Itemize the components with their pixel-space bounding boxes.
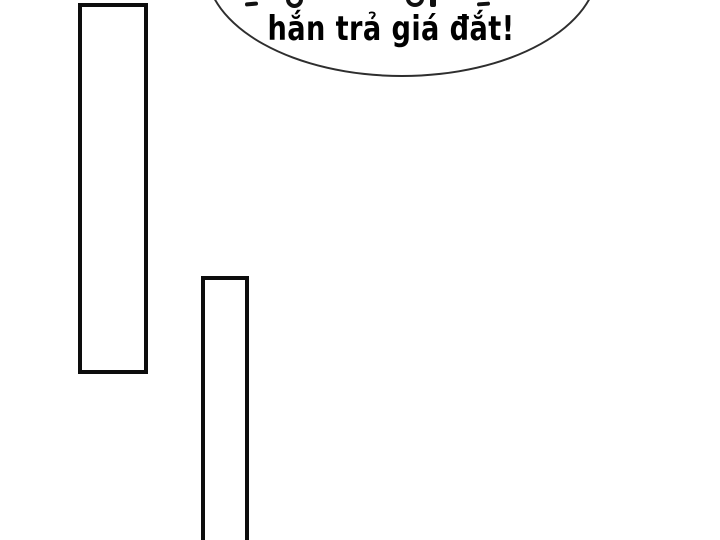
speech-text: hắn trả giá đắt! (78, 12, 704, 46)
comic-panel: hắn trả giá đắt! (0, 0, 720, 540)
cropped-letter-p-stem-fragment (430, 0, 436, 7)
tall-rectangle-left (78, 3, 148, 374)
tall-rectangle-middle (201, 276, 249, 540)
